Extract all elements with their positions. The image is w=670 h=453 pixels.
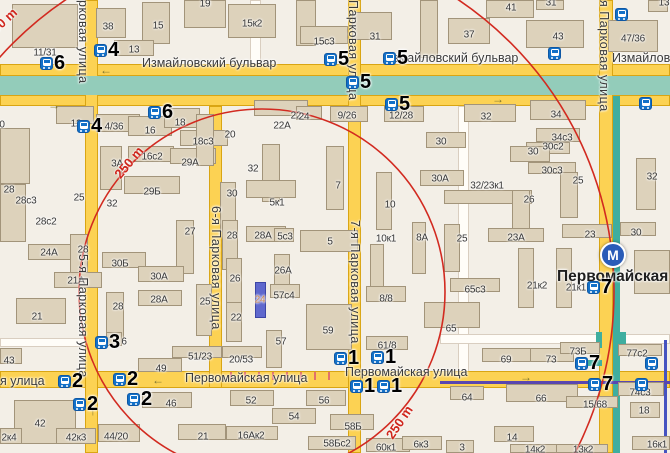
minor-road [0, 338, 86, 347]
bus-stop-number: 2 [87, 394, 98, 414]
building-label: 25 [457, 234, 468, 245]
building-label: 42 [35, 419, 46, 430]
building-label: 30А [150, 272, 167, 283]
building-label: 21 [198, 432, 209, 443]
bus-stop-icon[interactable] [383, 52, 396, 65]
building-label: 8А [416, 233, 428, 244]
building-label: 15/68 [583, 400, 607, 411]
bus-stop-icon[interactable] [377, 380, 390, 393]
building-label: 9/26 [338, 111, 357, 122]
bus-stop-icon[interactable] [588, 378, 601, 391]
building-label: 51/23 [188, 352, 212, 363]
bus-stop-icon[interactable] [548, 47, 561, 60]
tram-tick [328, 372, 330, 380]
building-label: 37 [464, 30, 475, 41]
building-label: 30 [227, 189, 238, 200]
bus-stop-icon[interactable] [334, 352, 347, 365]
building-label: 56 [319, 396, 330, 407]
one-way-arrow-icon: ← [100, 63, 112, 77]
building-label: 58Бс2 [323, 439, 350, 450]
bus-stop-number: 1 [348, 348, 359, 368]
building-label: 14 [507, 433, 518, 444]
building-label: 32/23к1 [470, 181, 504, 192]
bus-stop-icon[interactable] [635, 378, 648, 391]
selected-building-label: 24 [255, 295, 266, 306]
building-label: 16Ак2 [238, 431, 265, 442]
building-label: 15к2 [242, 19, 262, 30]
building-label: 28 [4, 185, 15, 196]
street-label-vertical: 6-я Парковая улица [209, 206, 223, 330]
building-label: 64 [462, 393, 473, 404]
bus-stop-icon[interactable] [587, 281, 600, 294]
building-label: 41 [506, 3, 517, 14]
bus-stop-icon[interactable] [113, 373, 126, 386]
building-label: 38 [103, 22, 114, 33]
building-label: 26 [230, 274, 241, 285]
building-label: 5с3 [277, 232, 293, 243]
building-label: 44/20 [104, 432, 128, 443]
building-label: 29Б [143, 187, 160, 198]
building-label: 5 [327, 237, 332, 248]
bus-stop-number: 6 [162, 102, 173, 122]
building-label: 34 [551, 110, 562, 121]
building-label: 7 [335, 181, 340, 192]
building-label: 28А [254, 231, 271, 242]
street-label-vertical: рковая улица [76, 0, 90, 84]
bus-stop-icon[interactable] [58, 375, 71, 388]
building-label: 20/53 [229, 355, 253, 366]
building-label: 3 [459, 443, 464, 453]
bus-stop-icon[interactable] [385, 98, 398, 111]
building-label: 28 [227, 231, 238, 242]
building-label: 28А [150, 295, 167, 306]
street-label-vertical: 5-я Парковая улица [76, 254, 90, 378]
building-label: 32 [107, 199, 118, 210]
bus-stop-icon[interactable] [639, 97, 652, 110]
building-label: 30с2 [543, 142, 564, 153]
building-label: 28с3 [16, 196, 37, 207]
building-label: 43 [4, 356, 15, 367]
one-way-arrow-icon: → [520, 370, 532, 384]
building-label: 30с3 [542, 166, 563, 177]
building-label: 22 [231, 313, 242, 324]
bus-stop-icon[interactable] [371, 351, 384, 364]
metro-station-label: Первомайская [557, 268, 668, 286]
building-label: 42к3 [66, 433, 86, 444]
building[interactable] [444, 224, 460, 272]
bus-stop-icon[interactable] [350, 380, 363, 393]
minor-road [440, 334, 670, 344]
building-label: 46 [166, 399, 177, 410]
building-label: 2к4 [2, 433, 17, 444]
building-label: 31 [546, 0, 557, 9]
building-label: 25 [573, 176, 584, 187]
bus-stop-icon[interactable] [40, 57, 53, 70]
building-label: 60к1 [376, 443, 396, 453]
bus-stop-number: 5 [397, 48, 408, 68]
building-label: 6к3 [414, 440, 429, 451]
building-label: 8/8 [379, 294, 392, 305]
building-label: 30 [631, 228, 642, 239]
building-label: 57с4 [274, 291, 295, 302]
bus-stop-icon[interactable] [95, 336, 108, 349]
building-label: 32 [248, 164, 259, 175]
bus-stop-icon[interactable] [127, 393, 140, 406]
building-label: 23А [507, 233, 524, 244]
building-label: 19 [200, 0, 211, 10]
building-label: 10к1 [376, 234, 396, 245]
building-label: 18 [639, 406, 650, 417]
bus-stop-number: 7 [589, 353, 600, 373]
bus-stop-icon[interactable] [346, 76, 359, 89]
bus-stop-icon[interactable] [324, 53, 337, 66]
bus-stop-number: 1 [391, 376, 402, 396]
building[interactable] [420, 0, 438, 58]
building-label: 52 [246, 396, 257, 407]
tram-tick [314, 372, 316, 380]
building-label: 54 [289, 412, 300, 423]
building-label: 15с3 [314, 37, 335, 48]
building-label: 65с3 [465, 285, 486, 296]
bus-stop-number: 4 [91, 116, 102, 136]
building-label: 18с3 [193, 137, 214, 148]
building-label: 30 [436, 137, 447, 148]
building[interactable] [326, 146, 344, 210]
bus-stop-number: 1 [385, 347, 396, 367]
bus-stop-icon[interactable] [645, 357, 658, 370]
building-label: 29А [181, 158, 198, 169]
building-label: 65 [446, 324, 457, 335]
building-label: 47/36 [621, 34, 645, 45]
bus-stop-icon[interactable] [77, 120, 90, 133]
bus-stop-number: 5 [338, 49, 349, 69]
building-label: 23 [585, 230, 596, 241]
building-label: 27 [185, 227, 196, 238]
building-label: 5к1 [270, 198, 285, 209]
bus-stop-number: 7 [602, 374, 613, 394]
bus-stop-icon[interactable] [73, 398, 86, 411]
bus-stop-number: 2 [141, 389, 152, 409]
building-label: 16к1 [647, 440, 667, 451]
bus-stop-number: 4 [108, 40, 119, 60]
building-label: 66 [536, 394, 547, 405]
bus-stop-icon[interactable] [94, 44, 107, 57]
building-label: 0 [0, 120, 5, 131]
building-label: 22А [273, 121, 290, 132]
building[interactable] [0, 128, 30, 184]
building-label: 69 [501, 355, 512, 366]
building-label: 15 [153, 21, 164, 32]
building-label: 13к2 [573, 445, 593, 453]
building-label: 4/36 [105, 122, 124, 133]
bus-stop-number: 2 [127, 369, 138, 389]
building[interactable] [246, 180, 296, 198]
building-label: 13 [659, 0, 670, 9]
building-label: 10 [385, 200, 396, 211]
bus-stop-icon[interactable] [575, 357, 588, 370]
street-label-vertical: 7-я Парковая улица [348, 220, 362, 344]
building-label: 25 [74, 193, 85, 204]
building-label: 73 [546, 355, 557, 366]
building-label: 14к2 [525, 445, 545, 453]
street-label: я улица [0, 374, 45, 388]
building[interactable] [636, 158, 656, 210]
street-label: Первомайская улица [185, 371, 307, 385]
one-way-arrow-icon: → [48, 98, 60, 112]
building-label: 16 [145, 126, 156, 137]
building-label: 20 [225, 130, 236, 141]
one-way-arrow-icon: → [492, 92, 504, 106]
bus-stop-number: 5 [360, 72, 371, 92]
building-label: 28 [113, 302, 124, 313]
building-label: 21 [32, 312, 43, 323]
street-label: Измайловский бульвар [142, 56, 276, 70]
building-label: 30Б [111, 259, 128, 270]
building-label: 57 [276, 337, 287, 348]
bus-stop-number: 2 [72, 371, 83, 391]
bus-stop-number: 5 [399, 94, 410, 114]
building-label: 43 [553, 32, 564, 43]
building-label: 21к2 [527, 281, 547, 292]
building[interactable] [518, 248, 534, 308]
building-label: 32 [481, 112, 492, 123]
map-canvas[interactable]: 24250 m250 m500 m1938151311/3115к215с331… [0, 0, 670, 453]
map-overlay-line [0, 76, 670, 95]
bus-stop-icon[interactable] [615, 8, 628, 21]
building-label: 24А [40, 248, 57, 259]
street-label-vertical: я Парковая улица [597, 0, 611, 112]
building-label: 13 [129, 45, 140, 56]
bus-stop-number: 1 [364, 376, 375, 396]
bus-stop-number: 3 [109, 332, 120, 352]
building-label: 26А [274, 266, 291, 277]
building-label: 24 [299, 112, 310, 123]
building-label: 26 [524, 195, 535, 206]
metro-station-icon[interactable]: М [600, 242, 626, 268]
building-label: 30 [528, 147, 539, 158]
building-label: 31 [370, 32, 381, 43]
bus-stop-icon[interactable] [148, 106, 161, 119]
one-way-arrow-icon: ← [152, 373, 164, 387]
building-label: 18 [175, 118, 186, 129]
building-label: 30А [431, 174, 448, 185]
building-label: 58Б [344, 422, 361, 433]
building-label: 28с2 [36, 217, 57, 228]
bus-stop-number: 7 [601, 277, 612, 297]
building[interactable] [12, 4, 78, 48]
building[interactable] [412, 222, 426, 274]
building-label: 6 [121, 337, 126, 348]
building-label: 59 [323, 326, 334, 337]
bus-stop-number: 6 [54, 53, 65, 73]
building-label: 73Б [569, 347, 586, 358]
street-label: Измайловский [612, 51, 670, 65]
building-label: 32 [647, 172, 658, 183]
